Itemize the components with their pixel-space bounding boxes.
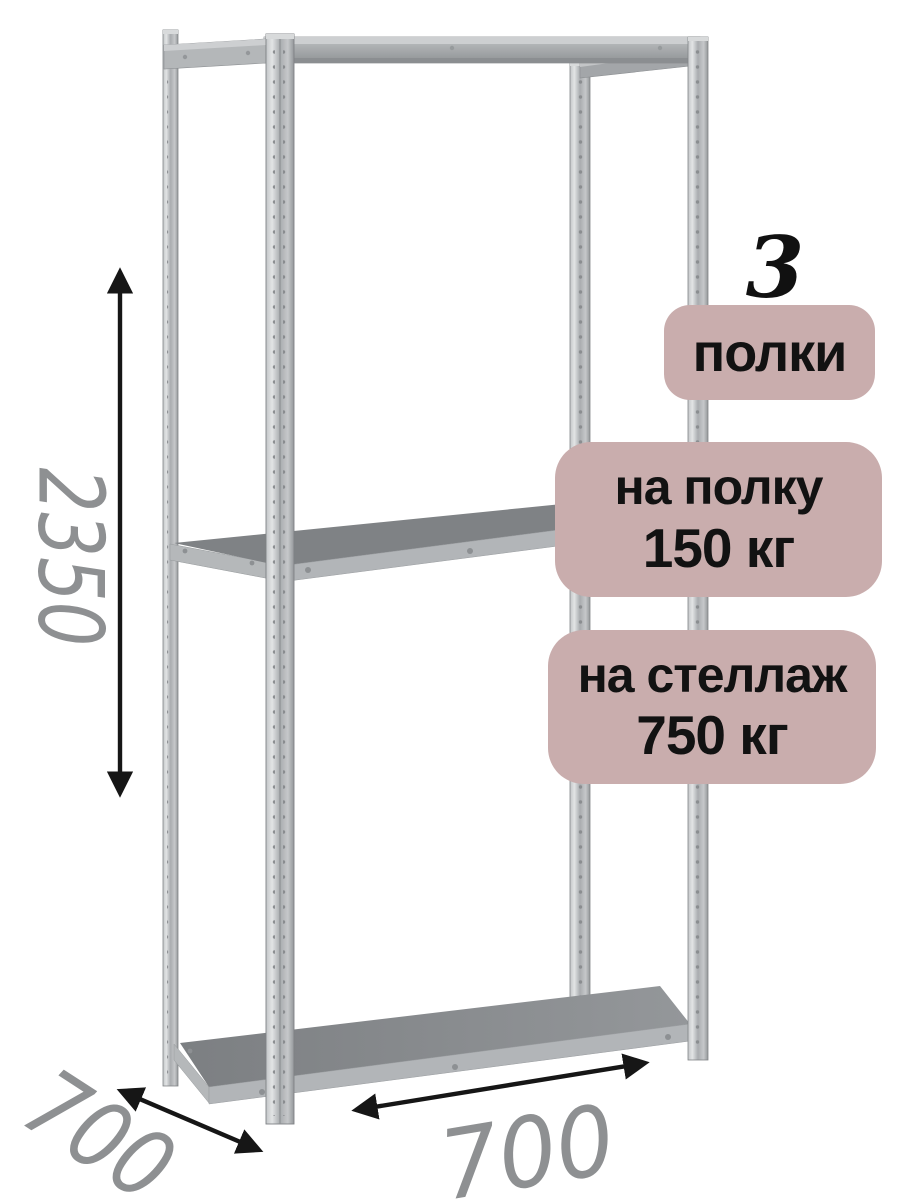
shelf-count-label: полки xyxy=(693,326,847,380)
per-shelf-load-badge: на полку 150 кг xyxy=(555,442,882,597)
top-depth-beam-left xyxy=(164,39,266,69)
post-front-left xyxy=(266,34,294,1124)
per-shelf-load-value: 150 кг xyxy=(643,517,794,580)
per-rack-load-badge: на стеллаж 750 кг xyxy=(548,630,876,784)
rack-illustration xyxy=(0,0,900,1200)
per-shelf-load-label: на полку xyxy=(615,459,823,517)
middle-shelf xyxy=(170,503,612,582)
top-beam-front xyxy=(264,37,700,63)
bottom-shelf xyxy=(174,986,690,1104)
product-image: 2350 700 700 3 полки на полку 150 кг на … xyxy=(0,0,900,1200)
per-rack-load-label: на стеллаж xyxy=(578,647,847,705)
per-rack-load-value: 750 кг xyxy=(636,704,787,767)
shelf-count-badge: полки xyxy=(664,305,875,400)
